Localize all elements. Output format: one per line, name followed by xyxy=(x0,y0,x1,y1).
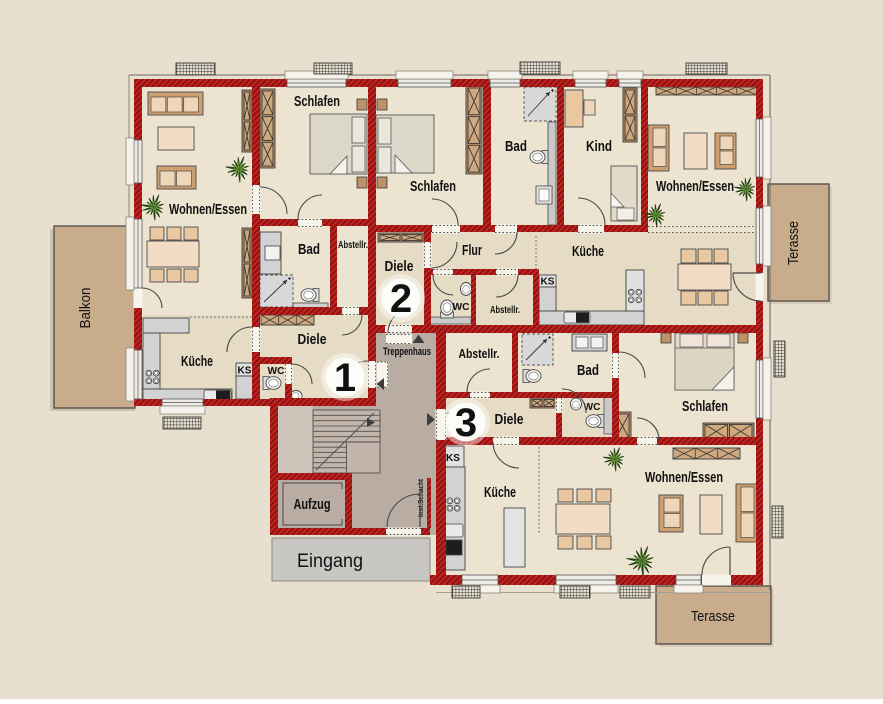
svg-text:Schlafen: Schlafen xyxy=(410,179,456,195)
svg-text:Diele: Diele xyxy=(385,259,414,275)
svg-text:Schlafen: Schlafen xyxy=(682,399,728,415)
svg-text:Terasse: Terasse xyxy=(691,609,735,625)
svg-text:Eingang: Eingang xyxy=(297,551,363,572)
svg-text:Bad: Bad xyxy=(505,139,527,155)
svg-text:Abstellr.: Abstellr. xyxy=(338,239,368,251)
svg-text:Küche: Küche xyxy=(572,244,604,260)
svg-text:Diele: Diele xyxy=(298,332,327,348)
svg-text:Bad: Bad xyxy=(298,242,320,258)
svg-text:WC: WC xyxy=(453,301,470,313)
svg-text:Kind: Kind xyxy=(586,139,612,155)
svg-text:Wohnen/Essen: Wohnen/Essen xyxy=(645,470,723,486)
svg-text:Wohnen/Essen: Wohnen/Essen xyxy=(169,202,247,218)
svg-text:Abstellr.: Abstellr. xyxy=(490,304,520,316)
svg-text:Diele: Diele xyxy=(495,412,524,428)
svg-text:WC: WC xyxy=(268,365,285,377)
svg-text:1: 1 xyxy=(334,356,356,400)
svg-text:Schlafen: Schlafen xyxy=(294,94,340,110)
svg-text:Treppenhaus: Treppenhaus xyxy=(383,346,431,358)
svg-text:Terasse: Terasse xyxy=(786,221,802,265)
svg-text:Flur: Flur xyxy=(462,243,482,259)
svg-text:Abstellr.: Abstellr. xyxy=(459,347,500,361)
svg-text:KS: KS xyxy=(541,276,555,288)
svg-text:KS: KS xyxy=(446,452,460,464)
svg-text:Aufzug: Aufzug xyxy=(294,497,331,513)
svg-text:Küche: Küche xyxy=(181,354,213,370)
svg-text:Bad: Bad xyxy=(577,363,599,379)
svg-text:Balkon: Balkon xyxy=(78,288,94,329)
svg-text:2: 2 xyxy=(390,277,412,321)
svg-text:Küche: Küche xyxy=(484,485,516,501)
svg-text:3: 3 xyxy=(455,401,477,445)
svg-text:Wohnen/Essen: Wohnen/Essen xyxy=(656,179,734,195)
svg-text:KS: KS xyxy=(238,365,252,377)
